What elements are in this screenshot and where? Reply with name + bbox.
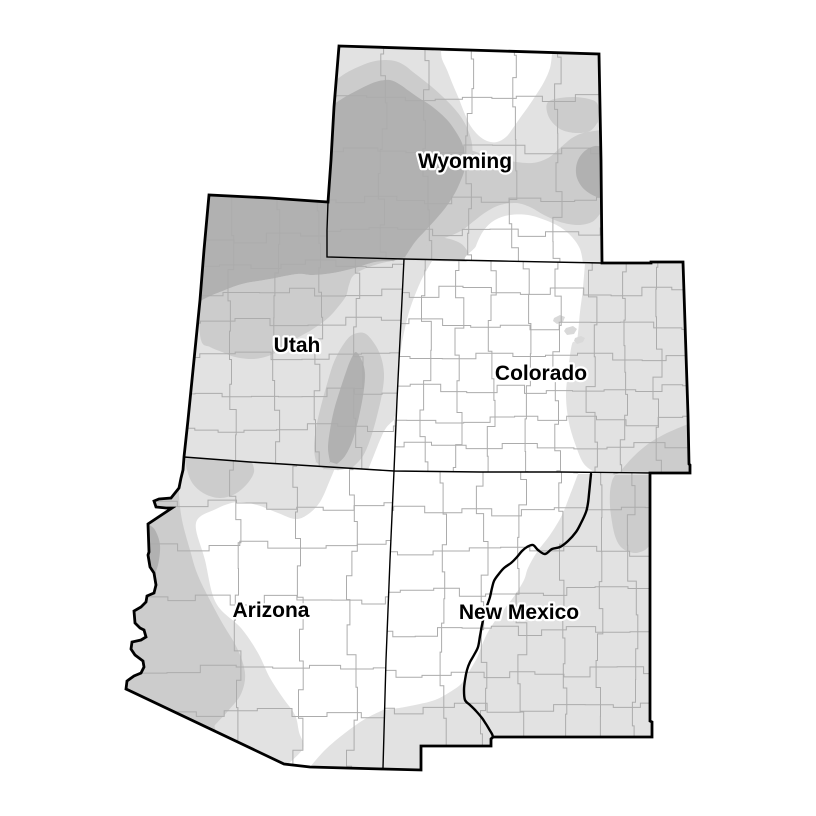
svg-text:Colorado: Colorado [495,362,587,385]
svg-text:Utah: Utah [274,334,321,357]
svg-text:Wyoming: Wyoming [418,150,512,173]
svg-text:New Mexico: New Mexico [459,601,579,624]
svg-text:Arizona: Arizona [232,599,309,622]
